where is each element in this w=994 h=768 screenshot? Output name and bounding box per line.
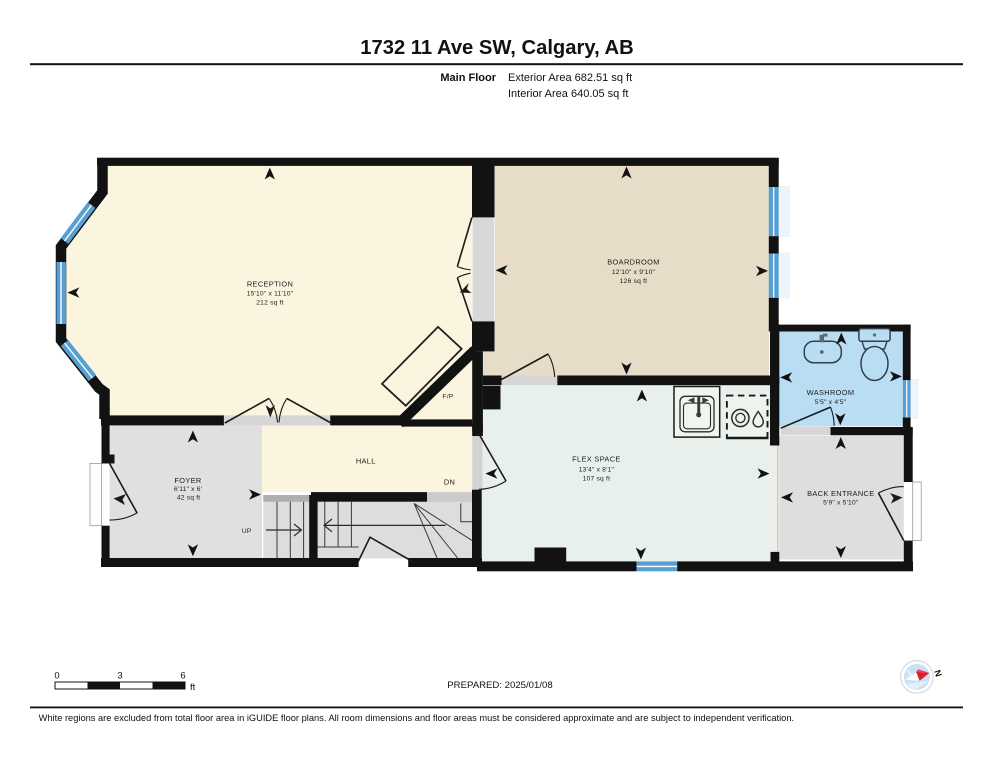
svg-text:RECEPTION: RECEPTION: [247, 279, 293, 288]
svg-text:DN: DN: [444, 477, 455, 486]
svg-text:6'11" x 6': 6'11" x 6': [174, 486, 202, 493]
svg-text:6: 6: [180, 671, 185, 682]
svg-text:Exterior Area 682.51 sq ft: Exterior Area 682.51 sq ft: [508, 72, 632, 84]
svg-text:BOARDROOM: BOARDROOM: [607, 258, 659, 267]
svg-text:F/P: F/P: [442, 393, 453, 400]
svg-text:FOYER: FOYER: [174, 476, 201, 485]
svg-text:3: 3: [117, 671, 122, 682]
svg-text:126 sq ft: 126 sq ft: [620, 278, 647, 285]
svg-text:42 sq ft: 42 sq ft: [177, 494, 201, 501]
svg-text:1732 11 Ave SW, Calgary, AB: 1732 11 Ave SW, Calgary, AB: [360, 37, 633, 59]
svg-text:HALL: HALL: [356, 457, 376, 466]
svg-text:ft: ft: [190, 682, 196, 693]
svg-text:PREPARED: 2025/01/08: PREPARED: 2025/01/08: [447, 680, 552, 691]
svg-text:5'9" x 5'10": 5'9" x 5'10": [823, 499, 859, 506]
svg-text:0: 0: [54, 671, 59, 682]
svg-text:107 sq ft: 107 sq ft: [583, 476, 610, 483]
svg-text:Main Floor: Main Floor: [440, 72, 496, 84]
svg-text:UP: UP: [242, 528, 252, 535]
svg-text:FLEX SPACE: FLEX SPACE: [572, 455, 621, 464]
svg-text:Interior Area 640.05 sq ft: Interior Area 640.05 sq ft: [508, 88, 628, 100]
svg-text:15'10" x 11'10": 15'10" x 11'10": [247, 291, 294, 298]
svg-text:12'10" x 9'10": 12'10" x 9'10": [612, 269, 656, 276]
svg-text:White regions are excluded fro: White regions are excluded from total fl…: [39, 713, 795, 723]
svg-text:WASHROOM: WASHROOM: [807, 388, 855, 397]
svg-text:13'4" x 8'1": 13'4" x 8'1": [579, 466, 615, 473]
svg-text:5'5" x 4'5": 5'5" x 4'5": [815, 399, 847, 406]
svg-text:212 sq ft: 212 sq ft: [256, 300, 283, 307]
svg-text:BACK ENTRANCE: BACK ENTRANCE: [807, 489, 874, 498]
